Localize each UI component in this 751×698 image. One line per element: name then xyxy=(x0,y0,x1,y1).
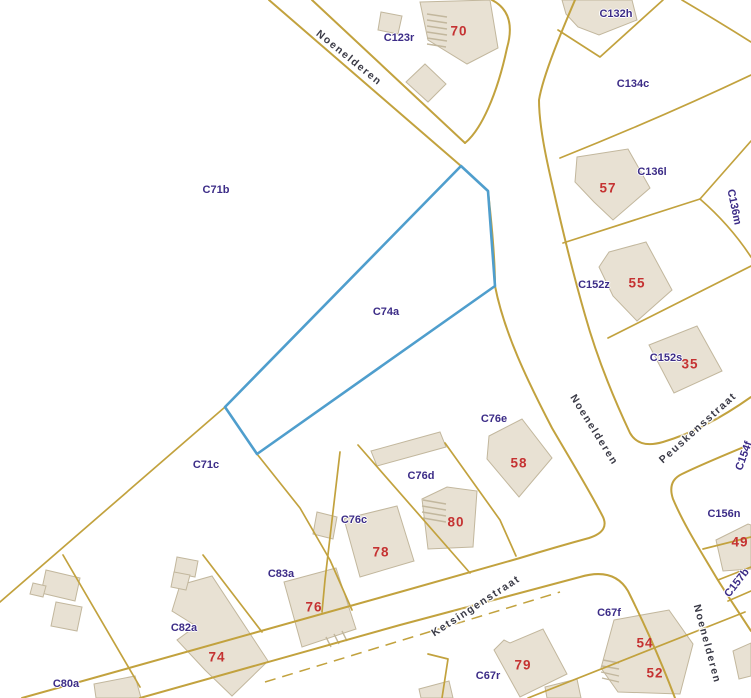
building xyxy=(313,512,337,539)
parcel-boundary-line xyxy=(560,75,751,158)
building xyxy=(419,681,453,698)
building xyxy=(51,602,82,631)
building xyxy=(733,643,751,679)
cadastral-map-canvas[interactable]: NoenelderenNoenelderenNoenelderenKetsing… xyxy=(0,0,751,698)
building xyxy=(94,676,141,698)
building xyxy=(599,242,672,321)
parcel-boundary-line xyxy=(682,0,751,42)
building xyxy=(344,506,414,577)
building xyxy=(171,572,190,590)
parcel-boundary-line xyxy=(563,199,700,243)
building xyxy=(575,149,650,220)
building xyxy=(406,64,446,102)
parcel-boundaries xyxy=(0,0,751,698)
parcel-boundary-line xyxy=(700,141,751,199)
parcel-boundary-line xyxy=(700,199,751,257)
building xyxy=(30,583,46,597)
building xyxy=(422,487,477,549)
map-drawing xyxy=(0,0,751,698)
building xyxy=(487,419,552,497)
building xyxy=(172,576,268,696)
parcel-boundary-line xyxy=(728,591,751,601)
building xyxy=(371,432,446,466)
road-edge-line xyxy=(539,0,751,444)
building xyxy=(649,326,722,393)
building xyxy=(378,12,402,34)
building xyxy=(716,524,751,571)
selected-parcel-outline[interactable] xyxy=(225,166,495,454)
